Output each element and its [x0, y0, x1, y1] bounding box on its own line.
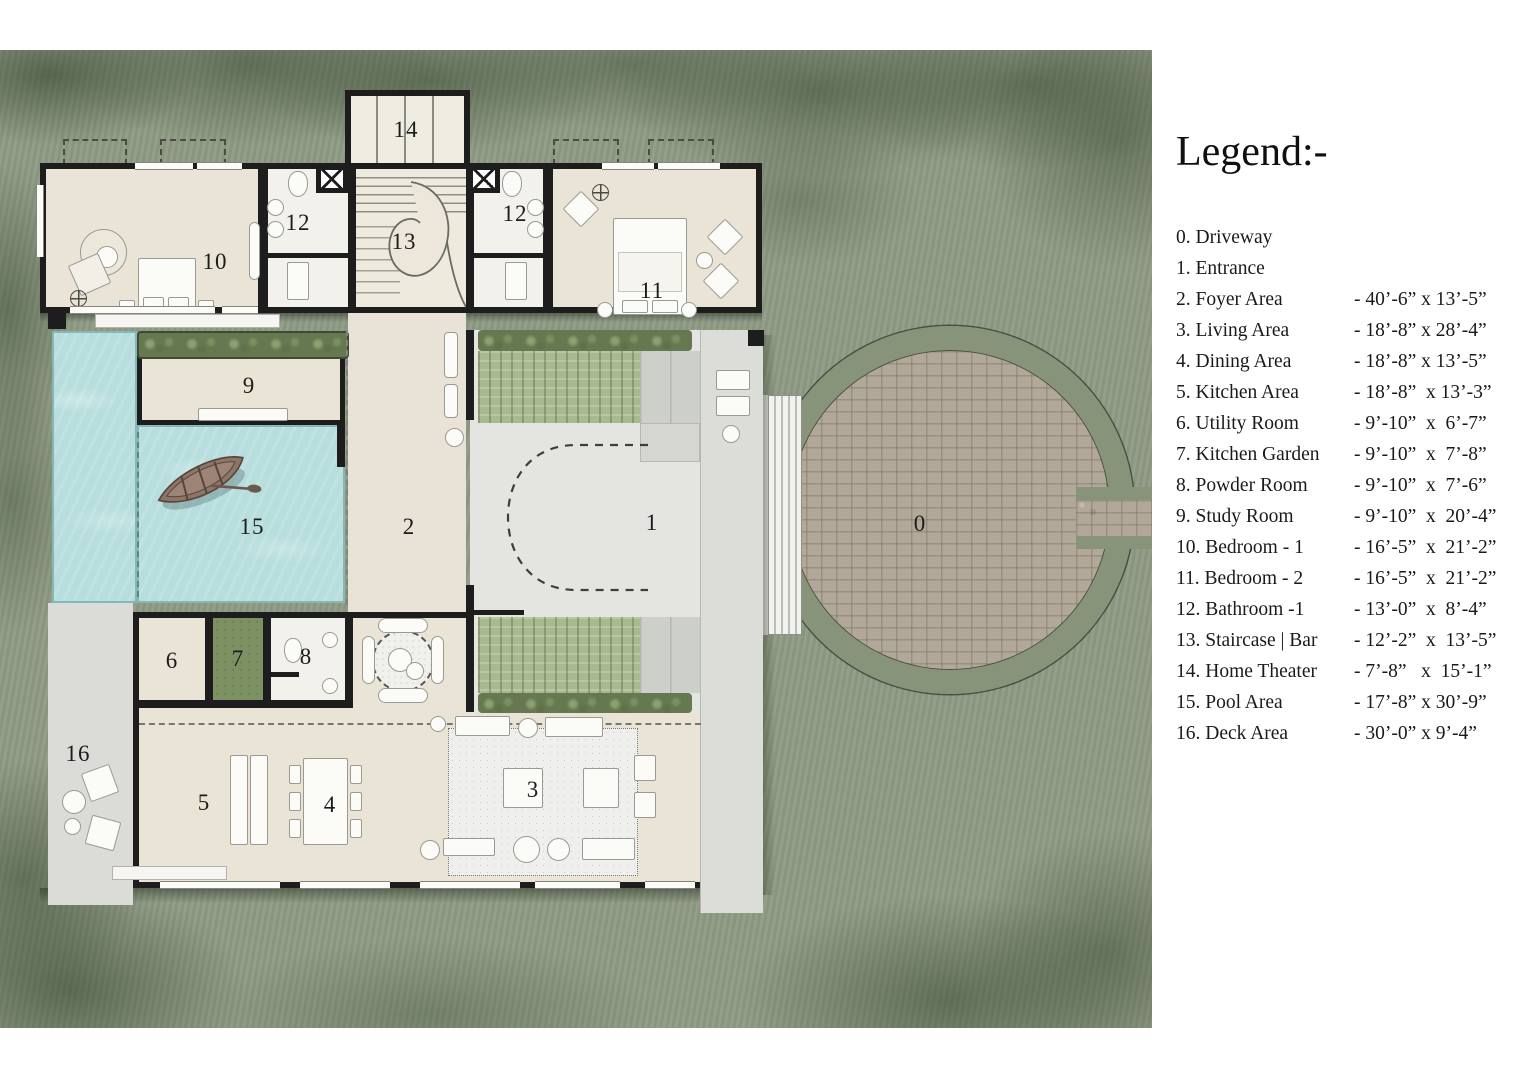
- legend-item-4: 4. Dining Area- 18’-8” x 13’-5”: [1176, 346, 1496, 377]
- sink-icon: [527, 199, 544, 216]
- sink-icon: [322, 678, 338, 694]
- window: [222, 306, 258, 314]
- legend-item-14: 14. Home Theater- 7’-8” x 15’-1”: [1176, 656, 1496, 687]
- legend-item-8: 8. Powder Room- 9’-10” x 7’-6”: [1176, 470, 1496, 501]
- room-label-8: 8: [300, 644, 313, 670]
- legend-item-2: 2. Foyer Area- 40’-6” x 13’-5”: [1176, 284, 1496, 315]
- bath-partition: [271, 672, 299, 677]
- court-lawn-north: [478, 351, 640, 423]
- plaza-bench: [716, 396, 750, 416]
- study-bench: [198, 408, 288, 421]
- entrance-plaza-strip: [700, 330, 763, 913]
- pool-wall-corner: [337, 425, 345, 467]
- room-deck: [48, 603, 133, 905]
- legend-title: Legend:-: [1176, 128, 1328, 176]
- driveway-cobblestone: [791, 351, 1109, 669]
- legend-item-3: 3. Living Area- 18’-8” x 28’-4”: [1176, 315, 1496, 346]
- legend-item-13: 13. Staircase | Bar- 12’-2” x 13’-5”: [1176, 625, 1496, 656]
- window: [36, 185, 44, 257]
- window-sill-bench: [112, 866, 227, 880]
- dining-chair: [350, 792, 362, 811]
- legend-item-0: 0. Driveway: [1176, 222, 1496, 253]
- floor-plan-sheet: 14 12 13 12 10 11 9 15 2 1 0 6 7 8 16 5 …: [0, 0, 1521, 1080]
- legend-item-6: 6. Utility Room- 9’-10” x 6’-7”: [1176, 408, 1496, 439]
- court-pavers-south: [640, 617, 700, 693]
- room-label-12a: 12: [286, 210, 311, 236]
- theater-seat-row: [432, 96, 434, 163]
- room-label-15: 15: [240, 514, 265, 540]
- room-label-9: 9: [243, 373, 256, 399]
- entrance-steps: [768, 395, 802, 635]
- side-table: [681, 302, 697, 318]
- dining-chair: [289, 819, 301, 838]
- nook-chair: [362, 636, 375, 684]
- window: [135, 162, 193, 170]
- shower-skylight-icon: [468, 165, 500, 193]
- room-label-13: 13: [392, 229, 417, 255]
- legend-item-15: 15. Pool Area- 17’-8” x 30’-9”: [1176, 687, 1496, 718]
- wall-partition: [348, 163, 356, 313]
- window: [420, 881, 520, 889]
- legend-item-5: 5. Kitchen Area- 18’-8” x 13’-3”: [1176, 377, 1496, 408]
- legend-item-12: 12. Bathroom -1- 13’-0” x 8’-4”: [1176, 594, 1496, 625]
- closet: [505, 262, 527, 300]
- legend-item-11: 11. Bedroom - 2- 16’-5” x 21’-2”: [1176, 563, 1496, 594]
- bench: [249, 222, 260, 280]
- armchair: [634, 755, 656, 781]
- foyer-dashed-edge: [346, 330, 348, 605]
- ceiling-fixture-icon: [592, 184, 609, 201]
- window: [645, 881, 695, 889]
- room-label-16: 16: [66, 741, 91, 767]
- dining-chair: [350, 765, 362, 784]
- legend-item-1: 1. Entrance: [1176, 253, 1496, 284]
- court-hedge-south: [478, 693, 692, 713]
- court-lawn-south: [478, 617, 640, 693]
- dining-chair: [289, 765, 301, 784]
- room-label-4: 4: [324, 792, 337, 818]
- wall-partition: [139, 700, 353, 708]
- window: [160, 881, 280, 889]
- deck-table: [62, 790, 86, 814]
- sink-icon: [527, 221, 544, 238]
- sofa: [545, 717, 603, 737]
- dining-chair: [289, 792, 301, 811]
- room-label-14: 14: [394, 117, 419, 143]
- room-label-10: 10: [203, 249, 228, 275]
- room-label-6: 6: [166, 648, 179, 674]
- pouf: [430, 716, 446, 732]
- side-table: [420, 840, 440, 860]
- console-bench: [444, 332, 458, 378]
- room-label-7: 7: [232, 646, 245, 672]
- deck-table: [64, 818, 81, 835]
- window: [300, 881, 390, 889]
- entry-path-dashed: [490, 430, 650, 605]
- legend-list: 0. Driveway 1. Entrance 2. Foyer Area- 4…: [1176, 222, 1496, 749]
- building-shadow-south: [40, 888, 712, 903]
- wall-corner-block: [748, 330, 764, 346]
- window: [197, 162, 242, 170]
- window-sill-bench: [95, 314, 280, 328]
- legend-item-7: 7. Kitchen Garden- 9’-10” x 7’-8”: [1176, 439, 1496, 470]
- pouf: [547, 838, 570, 861]
- sofa: [455, 716, 510, 736]
- bench: [443, 838, 495, 856]
- window: [70, 306, 215, 314]
- court-hedge-north: [478, 330, 692, 351]
- pool-left-arm: [52, 331, 137, 603]
- closet: [287, 262, 309, 300]
- room-label-1: 1: [646, 510, 659, 536]
- plaza-bench: [716, 370, 750, 390]
- wall-segment: [470, 610, 524, 615]
- window: [535, 881, 620, 889]
- planter-pot: [445, 428, 464, 447]
- room-label-11: 11: [640, 278, 664, 304]
- window: [602, 162, 654, 170]
- kitchen-island: [230, 755, 248, 845]
- room-label-5: 5: [198, 790, 211, 816]
- wall-partition: [543, 163, 553, 313]
- toilet-icon: [502, 171, 522, 197]
- legend-item-16: 16. Deck Area- 30’-0” x 9’-4”: [1176, 718, 1496, 749]
- wall-partition: [263, 612, 271, 708]
- console-bench: [444, 384, 458, 418]
- shower-skylight-icon: [316, 165, 348, 193]
- bath-partition: [268, 253, 348, 258]
- sink-icon: [322, 632, 338, 648]
- armchair: [634, 792, 656, 818]
- nook-table: [406, 662, 424, 680]
- toilet-icon: [288, 171, 308, 197]
- bath-partition: [474, 253, 543, 258]
- planter-pot: [722, 425, 740, 443]
- sink-icon: [267, 199, 284, 216]
- pouf: [696, 252, 713, 269]
- side-table: [518, 718, 538, 738]
- sink-icon: [267, 221, 284, 238]
- wall-segment: [466, 585, 474, 712]
- wall-partition: [205, 612, 213, 708]
- open-plan-dashed-line: [139, 723, 701, 725]
- kitchen-island: [250, 755, 268, 845]
- planter-hedge: [137, 331, 349, 359]
- room-label-3: 3: [527, 777, 540, 803]
- theater-seat-row: [376, 96, 378, 163]
- nook-chair: [378, 618, 428, 633]
- legend-item-9: 9. Study Room- 9’-10” x 20’-4”: [1176, 501, 1496, 532]
- nook-chair: [378, 688, 428, 703]
- court-pavers-north: [640, 351, 700, 423]
- dining-chair: [350, 819, 362, 838]
- wall-corner-block: [48, 311, 66, 329]
- legend-item-10: 10. Bedroom - 1- 16’-5” x 21’-2”: [1176, 532, 1496, 563]
- pouf: [513, 836, 540, 863]
- wall-partition: [345, 612, 353, 708]
- ceiling-fixture-icon: [70, 290, 87, 307]
- wall-segment: [466, 330, 474, 420]
- side-table: [597, 302, 613, 318]
- room-label-0: 0: [914, 511, 927, 537]
- sofa: [582, 838, 635, 860]
- nook-chair: [431, 636, 444, 684]
- room-label-2: 2: [403, 514, 416, 540]
- pergola-outline: [63, 139, 127, 165]
- window: [658, 162, 720, 170]
- pool-lane-dashed: [137, 432, 139, 597]
- coffee-table: [583, 768, 619, 808]
- driveway-access-road: [1076, 487, 1152, 549]
- room-label-12b: 12: [503, 201, 528, 227]
